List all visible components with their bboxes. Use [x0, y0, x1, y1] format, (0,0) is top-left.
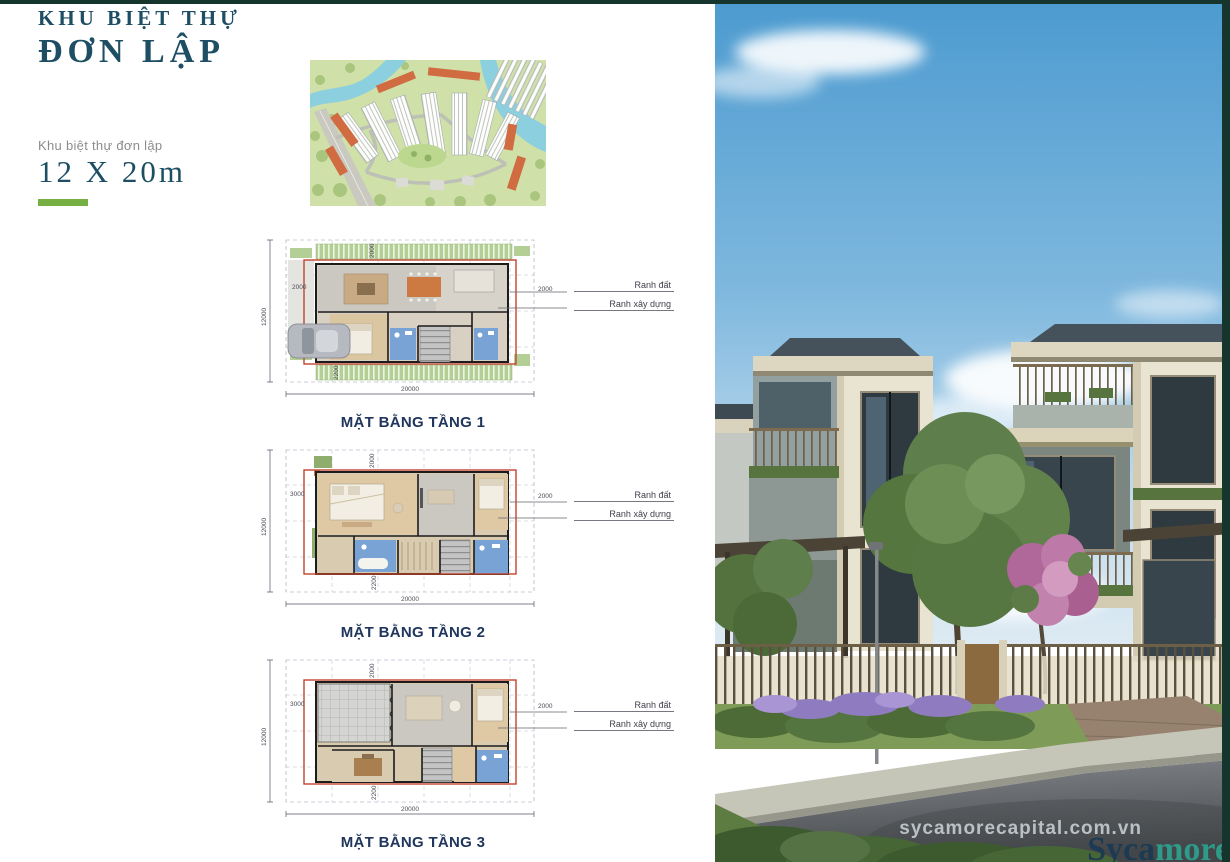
svg-text:2000: 2000: [369, 663, 376, 678]
page-title-line2: ĐƠN LẬP: [38, 33, 241, 71]
svg-text:12000: 12000: [261, 308, 268, 326]
build-boundary-label: Ranh xây dựng: [574, 717, 674, 731]
floor-plan-1: 2000 2000 12000 2000 2200 20000 Ranh đất…: [258, 234, 688, 434]
floor-plan-1-caption: MẶT BẰNG TẦNG 1: [258, 414, 568, 431]
floor-plan-1-drawing: 2000 2000 12000 2000 2200 20000: [258, 234, 568, 414]
svg-text:2200: 2200: [371, 785, 378, 800]
floor-plan-3-caption: MẶT BẰNG TẦNG 3: [258, 834, 568, 851]
right-border-bar: [1222, 0, 1230, 862]
boundary-legend: Ranh đất Ranh xây dựng: [574, 278, 674, 316]
svg-text:2200: 2200: [371, 575, 378, 590]
floor-plan-3: 3000 2000 12000 2000 2200 20000 Ranh đất…: [258, 654, 688, 854]
floor-plan-2-caption: MẶT BẰNG TẦNG 2: [258, 624, 568, 641]
svg-text:3000: 3000: [290, 701, 305, 708]
build-boundary-label: Ranh xây dựng: [574, 297, 674, 311]
land-boundary-label: Ranh đất: [574, 278, 674, 292]
land-boundary-label: Ranh đất: [574, 488, 674, 502]
master-plan-map: [310, 60, 546, 206]
svg-text:20000: 20000: [401, 596, 419, 603]
floor-plan-3-drawing: 3000 2000 12000 2000 2200 20000: [258, 654, 568, 834]
brand-logo-light-part: more: [1155, 831, 1230, 862]
lot-spec-label: Khu biệt thự đơn lập: [38, 138, 186, 153]
svg-text:12000: 12000: [261, 518, 268, 536]
villa-photo-render: [715, 4, 1230, 862]
page-title: KHU BIỆT THỰ ĐƠN LẬP: [38, 6, 241, 71]
build-boundary-label: Ranh xây dựng: [574, 507, 674, 521]
svg-text:3000: 3000: [290, 491, 305, 498]
lot-spec-block: Khu biệt thự đơn lập 12 X 20m: [38, 138, 186, 206]
floor-plan-2-drawing: 3000 2000 12000 2000 2200 20000: [258, 444, 568, 624]
master-plan-map-drawing: [310, 60, 546, 206]
page-title-line1: KHU BIỆT THỰ: [38, 6, 241, 31]
boundary-legend: Ranh đất Ranh xây dựng: [574, 698, 674, 736]
svg-text:2200: 2200: [333, 365, 340, 380]
svg-text:20000: 20000: [401, 386, 419, 393]
brand-logo: Sycamore: [1087, 831, 1230, 862]
boundary-legend: Ranh đất Ranh xây dựng: [574, 488, 674, 526]
floor-plan-2: 3000 2000 12000 2000 2200 20000 Ranh đất…: [258, 444, 688, 644]
svg-text:2000: 2000: [538, 703, 553, 710]
svg-text:2000: 2000: [538, 493, 553, 500]
brochure-page: KHU BIỆT THỰ ĐƠN LẬP Khu biệt thự đơn lậ…: [0, 0, 1230, 862]
svg-text:2000: 2000: [538, 286, 553, 293]
svg-text:20000: 20000: [401, 806, 419, 813]
top-border-bar: [0, 0, 1230, 4]
villa-photo: sycamorecapital.com.vn Sycamore: [715, 4, 1230, 862]
svg-text:2000: 2000: [292, 284, 307, 291]
land-boundary-label: Ranh đất: [574, 698, 674, 712]
svg-text:12000: 12000: [261, 728, 268, 746]
svg-text:2000: 2000: [369, 243, 376, 258]
accent-underline: [38, 199, 88, 206]
lot-size-value: 12 X 20m: [38, 154, 186, 190]
brand-logo-dark-part: Syca: [1087, 831, 1155, 862]
svg-text:2000: 2000: [369, 453, 376, 468]
